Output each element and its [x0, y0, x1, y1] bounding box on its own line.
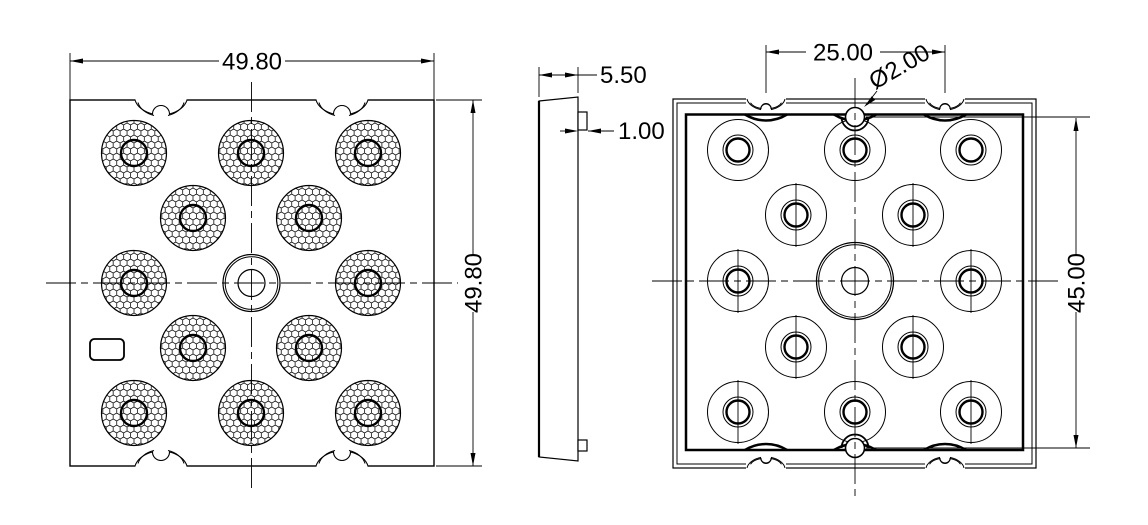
dim-front-width-text: 49.80: [222, 49, 282, 76]
arrowhead: [471, 100, 476, 113]
dim-side-thickness-text: 5.50: [600, 62, 647, 89]
arrowhead: [539, 73, 552, 78]
back-view: 25.00 Ø2.00 45.00: [652, 39, 1091, 496]
side-body: [539, 97, 578, 461]
side-tab-top: [578, 112, 587, 130]
dim-back-hole-callout: Ø2.00: [864, 39, 935, 107]
technical-drawing-canvas: 49.80 49.80 5.50: [0, 0, 1148, 525]
dim-front-height-text: 49.80: [461, 253, 488, 313]
arrowhead: [70, 59, 83, 64]
hex-lens: [277, 186, 342, 251]
arrowhead: [421, 59, 434, 64]
arrowhead: [471, 453, 476, 466]
arrowhead: [766, 50, 779, 55]
arrowhead: [588, 129, 601, 134]
front-view: 49.80 49.80: [46, 49, 488, 493]
hex-lens: [219, 121, 284, 186]
arrowhead: [565, 73, 578, 78]
hex-lens: [102, 381, 167, 446]
polarity-mark: [90, 339, 124, 360]
dim-back-notch-spacing-text: 25.00: [813, 40, 873, 67]
drawing-sheet: 49.80 49.80 5.50: [0, 0, 1148, 525]
side-tab-bottom: [578, 440, 587, 451]
dim-front-width: 49.80: [70, 49, 434, 101]
dim-side-tab-text: 1.00: [618, 118, 665, 145]
hex-lens: [336, 381, 401, 446]
arrowhead: [932, 50, 945, 55]
hex-lens: [161, 316, 226, 381]
arrowhead: [1074, 435, 1079, 448]
hex-lens: [219, 381, 284, 446]
arrowhead: [1074, 118, 1079, 131]
dim-back-hole-spacing-text: 45.00: [1064, 253, 1091, 313]
dim-back-hole-text: Ø2.00: [865, 39, 935, 95]
hex-lens: [336, 121, 401, 186]
hex-lens: [277, 316, 342, 381]
dim-side-thickness: 5.50: [539, 62, 647, 97]
hex-lens: [102, 121, 167, 186]
hex-lens: [161, 186, 226, 251]
side-view: 5.50 1.00: [539, 62, 665, 461]
